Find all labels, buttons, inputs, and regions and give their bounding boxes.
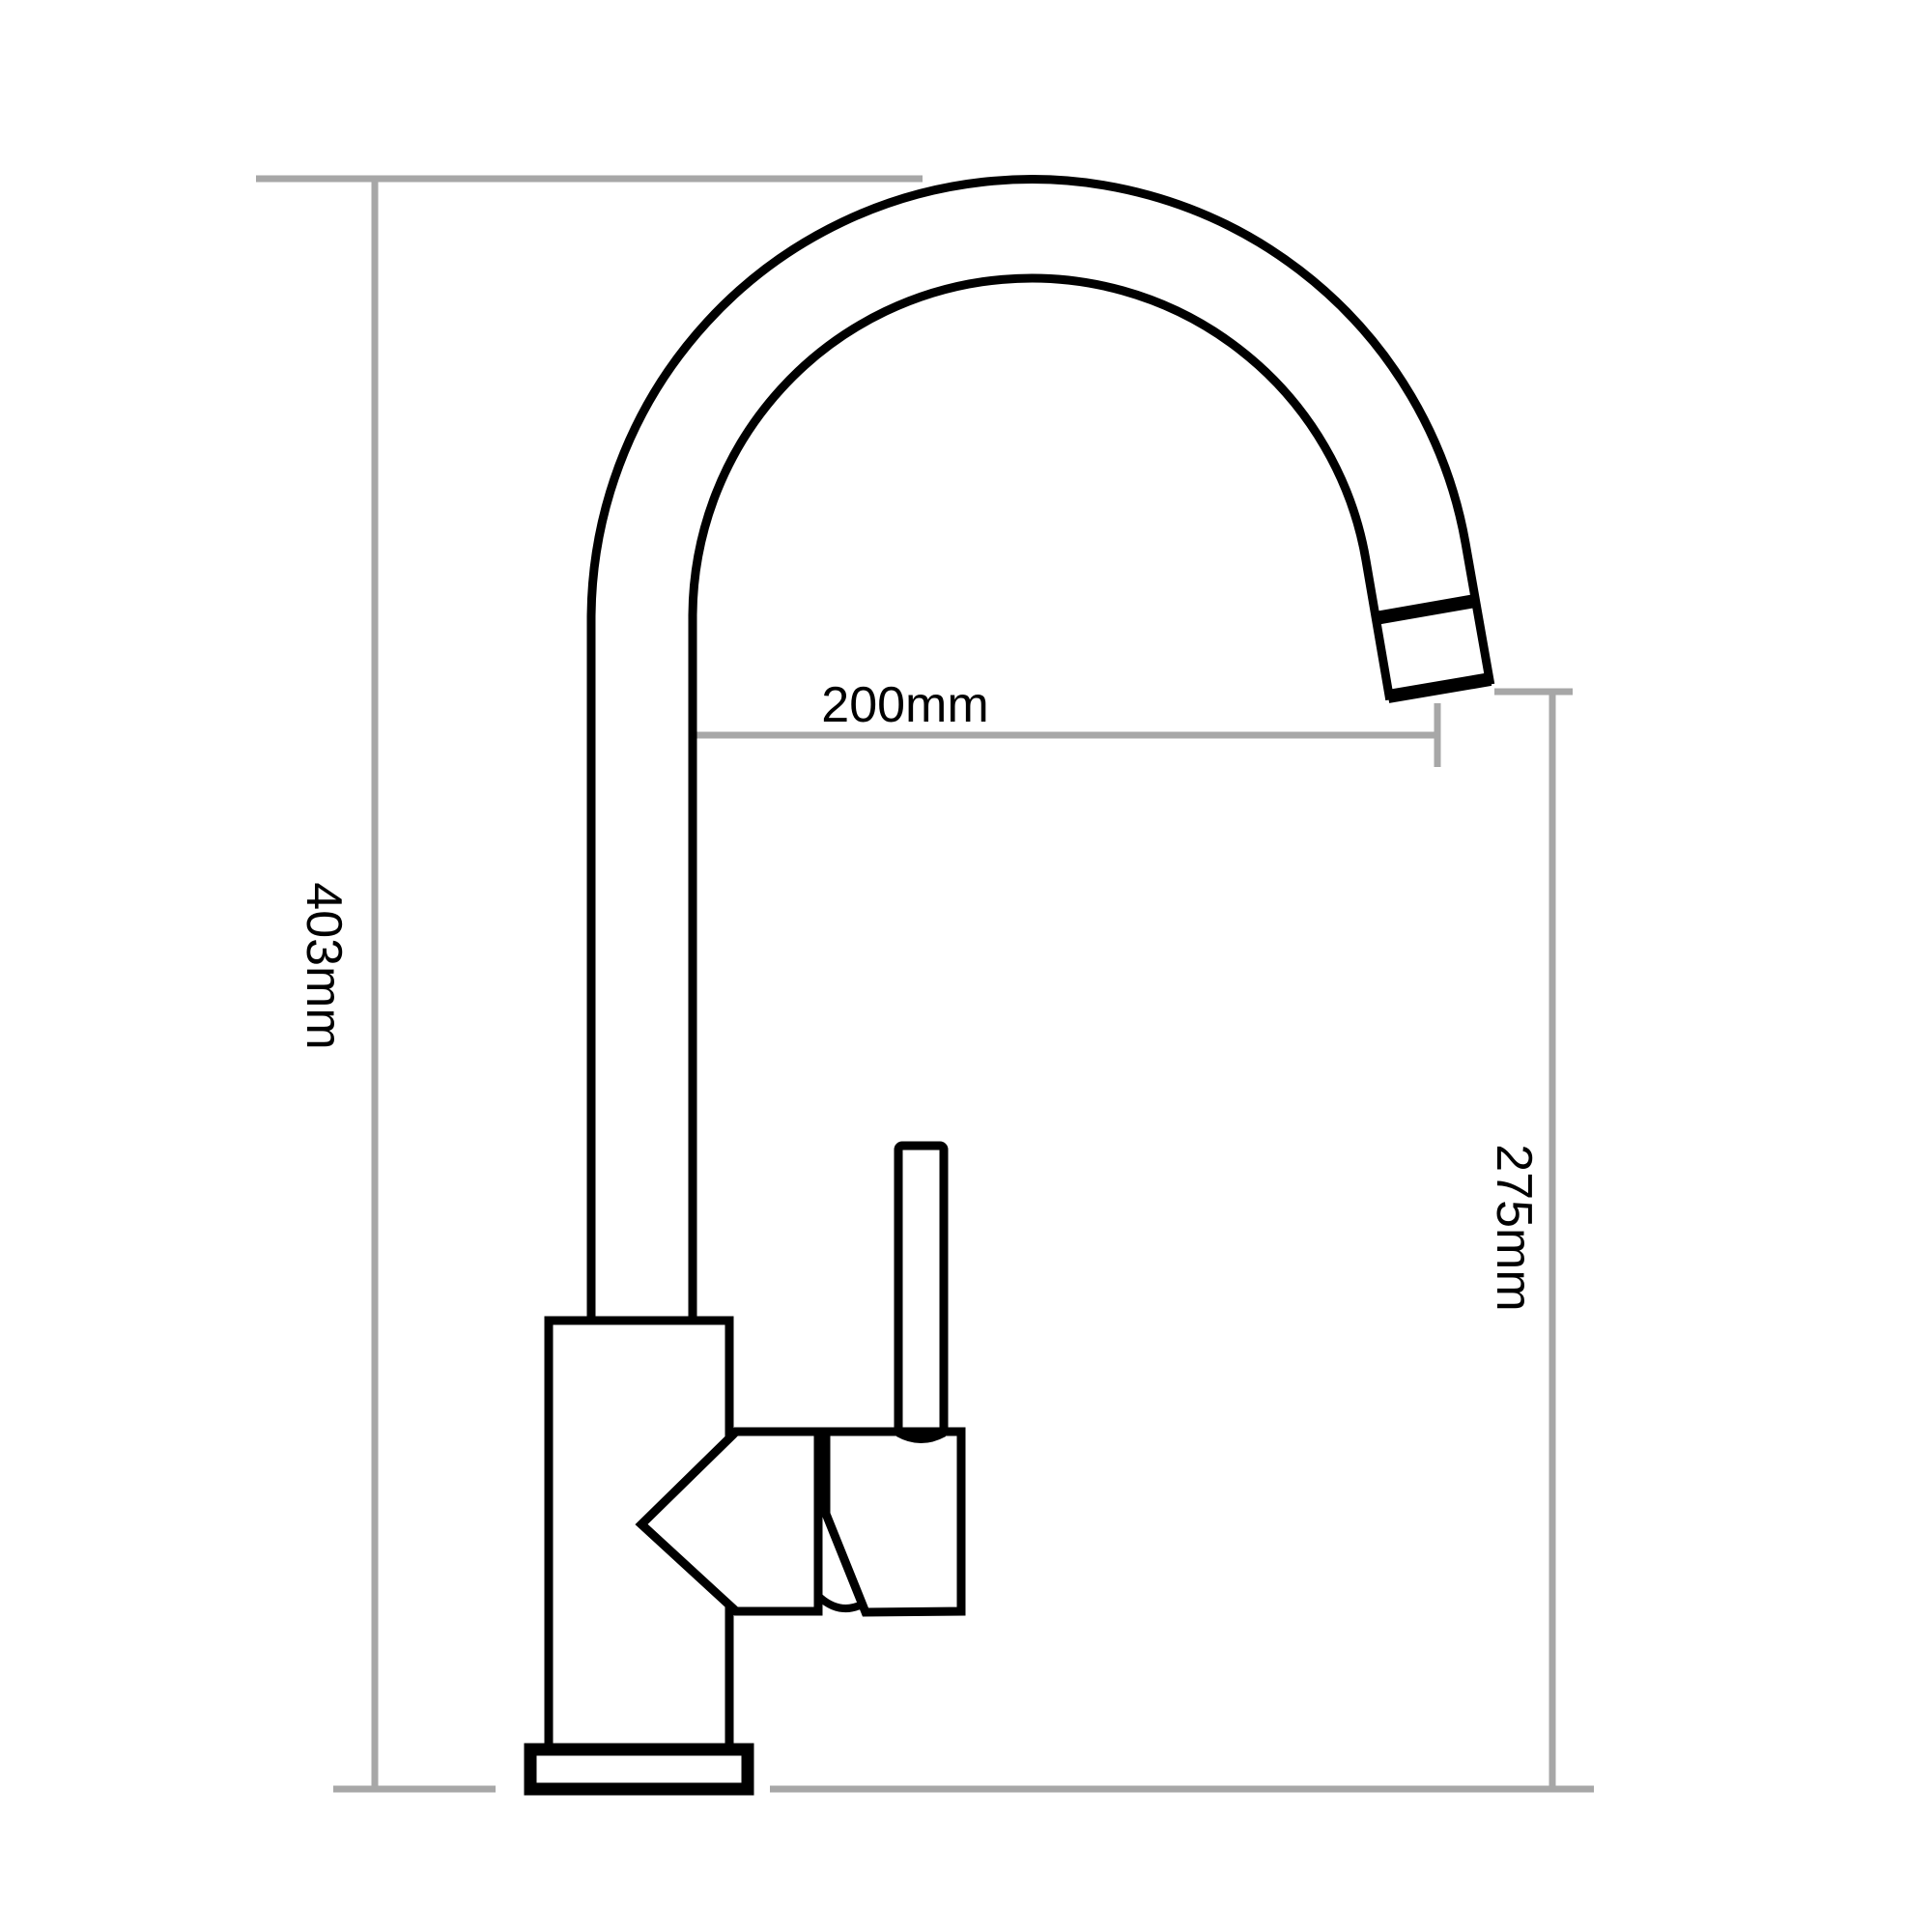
spout-tube	[591, 180, 1490, 1321]
faucet-technical-drawing: 403mm 200mm 275mm	[0, 0, 1932, 1932]
faucet-outline	[530, 180, 1491, 1789]
height-dim-label: 403mm	[296, 882, 352, 1049]
handle-lever	[898, 1146, 944, 1435]
spout-height-dim-label: 275mm	[1486, 1144, 1542, 1311]
handle-mount	[826, 1432, 961, 1612]
base-flange	[530, 1749, 748, 1789]
reach-dim-label: 200mm	[821, 677, 988, 733]
faucet-diagram-canvas: 403mm 200mm 275mm	[0, 0, 1932, 1932]
valve-bottom-arc	[819, 1597, 862, 1608]
